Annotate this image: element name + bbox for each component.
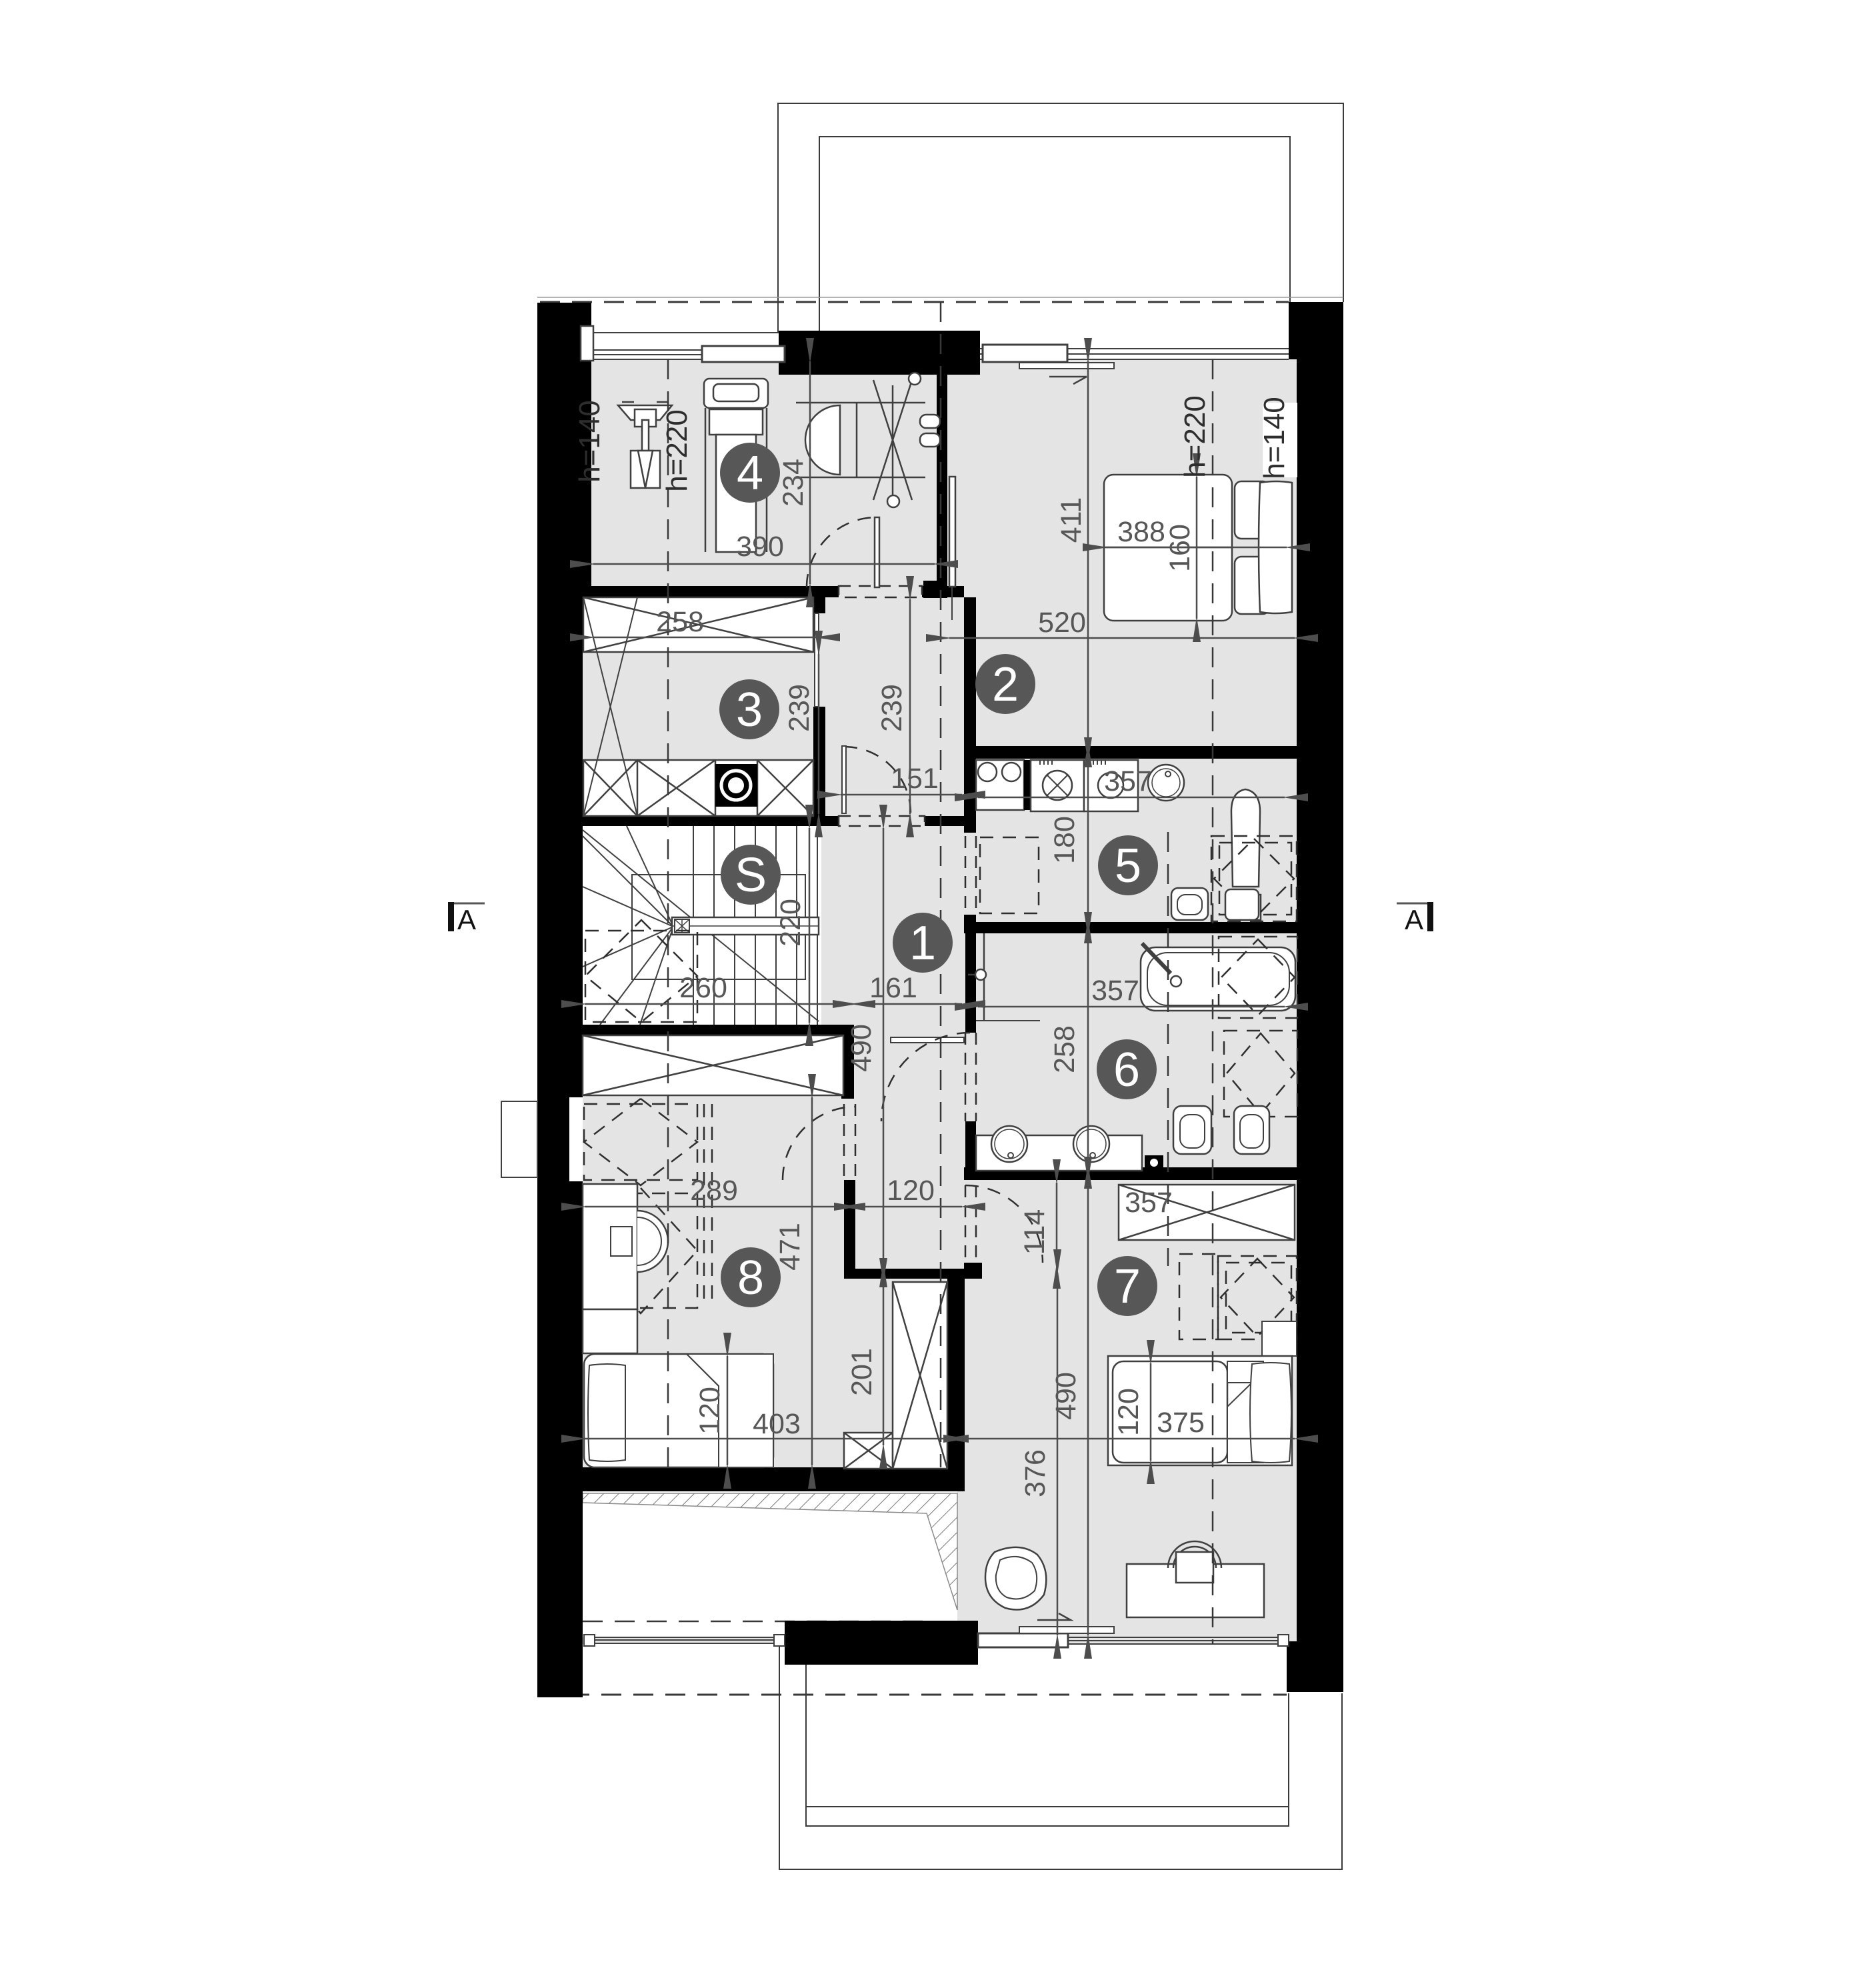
svg-text:260: 260 <box>679 972 727 1004</box>
svg-text:A: A <box>457 904 476 935</box>
svg-text:376: 376 <box>1019 1449 1051 1497</box>
svg-text:180: 180 <box>1049 816 1081 864</box>
svg-text:258: 258 <box>1049 1025 1081 1073</box>
svg-text:120: 120 <box>694 1387 726 1435</box>
svg-text:388: 388 <box>1117 516 1165 548</box>
svg-text:471: 471 <box>774 1223 806 1271</box>
svg-text:114: 114 <box>1019 1209 1051 1255</box>
svg-text:390: 390 <box>736 531 784 563</box>
svg-text:234: 234 <box>777 459 809 507</box>
svg-text:160: 160 <box>1164 524 1196 572</box>
svg-text:1: 1 <box>909 917 936 970</box>
svg-text:h=220: h=220 <box>1179 395 1211 478</box>
svg-text:4: 4 <box>737 447 763 500</box>
svg-text:5: 5 <box>1115 839 1141 893</box>
svg-text:120: 120 <box>1113 1388 1145 1436</box>
svg-text:h=220: h=220 <box>661 409 693 492</box>
svg-text:8: 8 <box>737 1251 764 1305</box>
svg-text:201: 201 <box>846 1348 878 1396</box>
svg-text:220: 220 <box>775 899 807 947</box>
svg-text:h=140: h=140 <box>573 400 606 483</box>
svg-text:A: A <box>1405 904 1423 935</box>
svg-text:357: 357 <box>1104 765 1152 797</box>
svg-text:520: 520 <box>1038 607 1086 639</box>
svg-text:357: 357 <box>1125 1187 1173 1219</box>
svg-text:161: 161 <box>869 972 917 1004</box>
svg-text:239: 239 <box>876 684 908 732</box>
svg-text:490: 490 <box>1050 1372 1082 1420</box>
svg-text:289: 289 <box>690 1175 738 1207</box>
svg-text:490: 490 <box>845 1024 877 1072</box>
svg-text:411: 411 <box>1055 497 1087 543</box>
svg-text:6: 6 <box>1113 1043 1140 1097</box>
svg-text:2: 2 <box>992 658 1019 711</box>
svg-text:h=140: h=140 <box>1258 397 1291 479</box>
svg-text:403: 403 <box>753 1408 801 1440</box>
svg-text:357: 357 <box>1091 975 1139 1007</box>
svg-text:S: S <box>735 849 767 902</box>
svg-text:3: 3 <box>736 683 763 737</box>
svg-text:375: 375 <box>1157 1407 1205 1439</box>
svg-text:120: 120 <box>887 1175 935 1207</box>
svg-text:7: 7 <box>1114 1260 1141 1313</box>
svg-text:258: 258 <box>656 606 704 638</box>
svg-text:151: 151 <box>891 763 939 795</box>
svg-text:239: 239 <box>783 684 815 732</box>
